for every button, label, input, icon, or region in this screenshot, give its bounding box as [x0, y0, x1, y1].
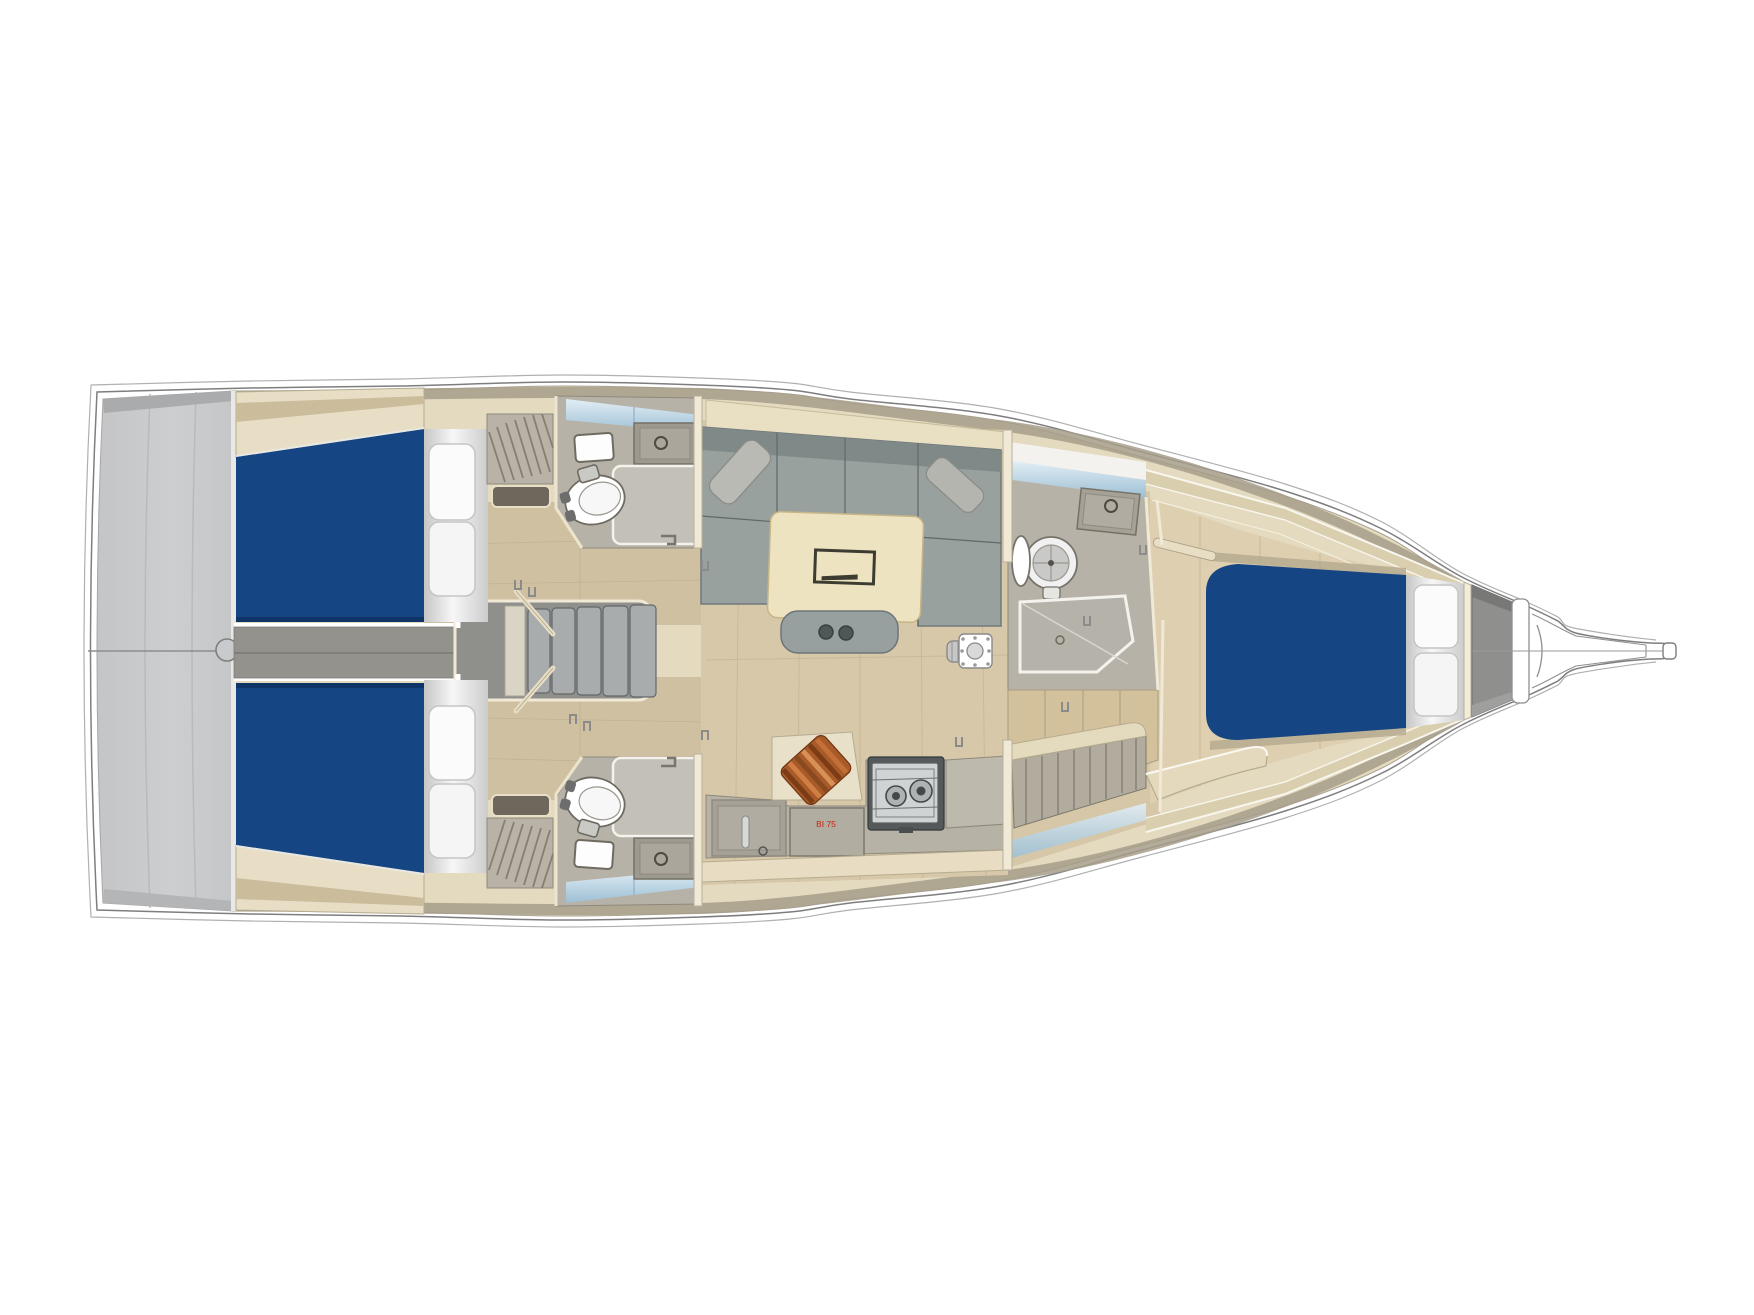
svg-text:BI 75: BI 75: [816, 819, 836, 829]
